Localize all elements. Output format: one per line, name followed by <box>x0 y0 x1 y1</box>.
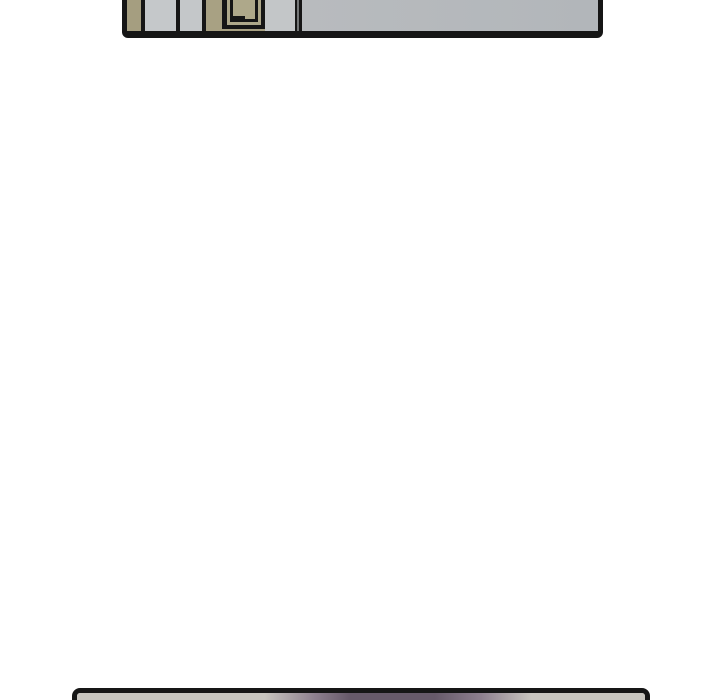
comic-page <box>0 0 720 700</box>
cabinet-door <box>222 0 265 29</box>
wall-corner-line <box>295 0 302 31</box>
cabinet-column <box>206 0 265 31</box>
comic-panel-top <box>122 0 603 38</box>
comic-panel-bottom <box>72 688 650 700</box>
wall-gap-strip <box>265 0 295 31</box>
wall-stripe-1 <box>145 0 176 31</box>
kitchen-wall <box>302 0 598 31</box>
wall-stripe-2 <box>180 0 202 31</box>
cabinet-side-strip <box>127 0 141 31</box>
blurred-purple-figure <box>77 693 645 700</box>
door-notch-line <box>230 16 245 19</box>
wall-corner-slit <box>297 0 299 31</box>
